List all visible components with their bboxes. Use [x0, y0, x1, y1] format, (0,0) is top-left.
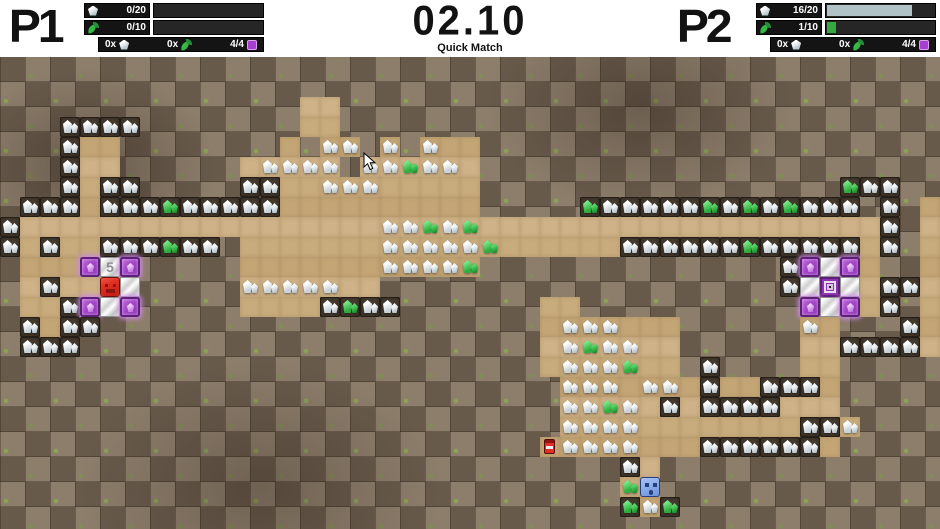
white-gem — [440, 237, 460, 257]
white-gem-in-dirt — [240, 177, 260, 197]
p2-gem-inventory: 0x — [777, 39, 801, 50]
white-gem-icon — [782, 260, 798, 274]
dug-sand-tile — [860, 257, 880, 277]
white-gem-icon — [122, 120, 138, 134]
white-gem-icon — [22, 200, 38, 214]
white-gem-icon — [442, 260, 458, 274]
p2-block-inventory-count: 4/4 — [902, 39, 916, 50]
dug-sand-tile — [760, 217, 780, 237]
white-gem-icon — [882, 300, 898, 314]
dug-sand-tile — [820, 357, 840, 377]
white-gem-icon — [822, 200, 838, 214]
white-gem-icon — [342, 180, 358, 194]
white-gem-icon — [42, 340, 58, 354]
green-gem-in-dirt — [740, 237, 760, 257]
green-gem — [420, 217, 440, 237]
white-gem-icon — [642, 240, 658, 254]
white-gem-icon — [622, 440, 638, 454]
dug-sand-tile — [80, 237, 100, 257]
dug-sand-tile — [420, 197, 440, 217]
white-gem-in-dirt — [740, 437, 760, 457]
marble-block — [800, 277, 820, 297]
white-gem-icon — [862, 180, 878, 194]
white-gem-icon — [762, 240, 778, 254]
dug-sand-tile — [700, 217, 720, 237]
white-gem-icon — [622, 420, 638, 434]
dug-sand-tile — [920, 237, 940, 257]
white-gem-icon — [422, 260, 438, 274]
white-gem-icon — [802, 320, 818, 334]
white-gem-icon — [62, 180, 78, 194]
dug-sand-tile — [140, 217, 160, 237]
dug-sand-tile — [660, 337, 680, 357]
dug-sand-tile — [280, 257, 300, 277]
white-gem-icon — [382, 140, 398, 154]
white-gem-in-dirt — [780, 437, 800, 457]
dug-sand-tile — [100, 217, 120, 237]
gem-icon — [791, 40, 801, 50]
purple-crystal-block — [120, 297, 140, 317]
white-gem — [600, 337, 620, 357]
dug-sand-tile — [920, 317, 940, 337]
white-gem-in-dirt — [880, 177, 900, 197]
dug-sand-tile — [400, 197, 420, 217]
white-gem-icon — [62, 120, 78, 134]
dug-sand-tile — [40, 297, 60, 317]
dug-sand-tile — [520, 237, 540, 257]
white-gem-icon — [422, 140, 438, 154]
white-gem — [560, 417, 580, 437]
white-gem — [240, 277, 260, 297]
dug-sand-tile — [600, 217, 620, 237]
white-gem-icon — [622, 340, 638, 354]
dug-sand-tile — [820, 397, 840, 417]
dug-sand-tile — [680, 217, 700, 237]
white-gem-icon — [562, 340, 578, 354]
white-gem-icon — [42, 240, 58, 254]
white-gem-icon — [702, 440, 718, 454]
white-gem — [840, 417, 860, 437]
marble-block — [820, 297, 840, 317]
dug-sand-tile — [240, 157, 260, 177]
white-gem-icon — [822, 420, 838, 434]
dug-sand-tile — [80, 137, 100, 157]
dug-sand-tile — [660, 437, 680, 457]
white-gem-icon — [822, 240, 838, 254]
white-gem-icon — [782, 440, 798, 454]
dug-sand-tile — [520, 217, 540, 237]
white-gem-icon — [562, 320, 578, 334]
white-gem-in-dirt — [720, 237, 740, 257]
game-board[interactable]: 5 — [0, 57, 940, 529]
p2-leaf-inventory: 0x — [839, 39, 864, 50]
white-gem-icon — [362, 300, 378, 314]
numbered-marble-block: 5 — [100, 257, 120, 277]
white-gem-icon — [42, 200, 58, 214]
white-gem — [560, 337, 580, 357]
white-gem-in-dirt — [100, 177, 120, 197]
green-gem — [620, 357, 640, 377]
white-gem-icon — [842, 420, 858, 434]
dug-sand-tile — [440, 177, 460, 197]
dug-sand-tile — [460, 137, 480, 157]
dug-sand-tile — [640, 437, 660, 457]
dug-sand-tile — [80, 177, 100, 197]
dug-sand-tile — [560, 237, 580, 257]
white-gem — [420, 137, 440, 157]
p2-leaf-counter: 1/10 — [756, 20, 822, 35]
white-gem-in-dirt — [660, 397, 680, 417]
white-gem-icon — [2, 240, 18, 254]
white-gem-icon — [422, 240, 438, 254]
dug-sand-tile — [920, 217, 940, 237]
dug-sand-tile — [860, 217, 880, 237]
dug-sand-tile — [460, 177, 480, 197]
dug-sand-tile — [280, 217, 300, 237]
green-gem-in-dirt — [580, 197, 600, 217]
dug-sand-tile — [560, 297, 580, 317]
white-gem-icon — [882, 180, 898, 194]
dug-sand-tile — [860, 297, 880, 317]
white-gem-in-dirt — [20, 337, 40, 357]
dug-sand-tile — [540, 317, 560, 337]
dug-sand-tile — [360, 277, 380, 297]
dug-sand-tile — [300, 117, 320, 137]
green-gem — [580, 337, 600, 357]
white-gem-icon — [602, 360, 618, 374]
white-gem-in-dirt — [360, 297, 380, 317]
dug-sand-tile — [580, 237, 600, 257]
white-gem-icon — [562, 360, 578, 374]
white-gem-icon — [562, 400, 578, 414]
white-gem — [400, 217, 420, 237]
white-gem-icon — [802, 200, 818, 214]
white-gem-in-dirt — [140, 237, 160, 257]
dug-sand-tile — [20, 297, 40, 317]
white-gem — [320, 277, 340, 297]
white-gem-icon — [402, 260, 418, 274]
player-red-avatar — [100, 277, 120, 297]
dug-sand-tile — [220, 217, 240, 237]
dug-sand-tile — [920, 297, 940, 317]
green-gem-icon — [702, 200, 718, 214]
white-gem-icon — [862, 340, 878, 354]
white-gem-in-dirt — [660, 197, 680, 217]
white-gem-icon — [802, 380, 818, 394]
white-gem-in-dirt — [700, 237, 720, 257]
white-gem-in-dirt — [180, 237, 200, 257]
dug-sand-tile — [840, 217, 860, 237]
marble-block — [100, 297, 120, 317]
white-gem-icon — [882, 200, 898, 214]
purple-crystal-block — [840, 297, 860, 317]
white-gem-in-dirt — [700, 437, 720, 457]
dug-sand-tile — [540, 357, 560, 377]
dug-sand-tile — [360, 237, 380, 257]
white-gem — [280, 277, 300, 297]
white-gem-in-dirt — [880, 337, 900, 357]
white-gem-in-dirt — [700, 357, 720, 377]
white-gem — [380, 137, 400, 157]
dug-sand-tile — [440, 137, 460, 157]
dug-sand-tile — [660, 317, 680, 337]
white-gem — [580, 417, 600, 437]
white-gem-in-dirt — [120, 177, 140, 197]
white-gem-in-dirt — [620, 237, 640, 257]
white-gem-in-dirt — [700, 397, 720, 417]
white-gem-icon — [662, 200, 678, 214]
white-gem — [280, 157, 300, 177]
white-gem-icon — [102, 200, 118, 214]
white-gem-in-dirt — [20, 317, 40, 337]
base-center-marker — [820, 277, 840, 297]
white-gem-icon — [682, 200, 698, 214]
dug-sand-tile — [640, 317, 660, 337]
dug-sand-tile — [80, 197, 100, 217]
white-gem — [360, 177, 380, 197]
dug-sand-tile — [320, 217, 340, 237]
green-gem-icon — [582, 200, 598, 214]
dug-sand-tile — [100, 137, 120, 157]
dug-sand-tile — [300, 237, 320, 257]
dug-sand-tile — [260, 237, 280, 257]
white-gem-icon — [802, 440, 818, 454]
white-gem-icon — [62, 140, 78, 154]
white-gem — [340, 137, 360, 157]
white-gem-icon — [382, 260, 398, 274]
dug-sand-tile — [720, 217, 740, 237]
dug-sand-tile — [620, 377, 640, 397]
green-gem-icon — [342, 300, 358, 314]
white-gem-in-dirt — [800, 437, 820, 457]
white-gem-in-dirt — [760, 397, 780, 417]
white-gem-in-dirt — [120, 197, 140, 217]
white-gem — [620, 417, 640, 437]
white-gem-icon — [382, 240, 398, 254]
green-gem-in-dirt — [340, 297, 360, 317]
white-gem — [460, 237, 480, 257]
white-gem-in-dirt — [240, 197, 260, 217]
white-gem-icon — [262, 180, 278, 194]
leaf-icon — [853, 39, 864, 50]
green-gem-in-dirt — [840, 177, 860, 197]
dug-sand-tile — [820, 217, 840, 237]
white-gem-icon — [102, 120, 118, 134]
dug-sand-tile — [60, 217, 80, 237]
white-gem — [260, 157, 280, 177]
p2-leaf-progress-fill — [827, 22, 836, 33]
p2-gem-progress-row: 16/20 — [756, 3, 936, 18]
white-gem-in-dirt — [60, 197, 80, 217]
dug-sand-tile — [180, 217, 200, 237]
white-gem-icon — [762, 200, 778, 214]
white-gem — [600, 357, 620, 377]
white-gem-in-dirt — [120, 117, 140, 137]
dug-sand-tile — [300, 197, 320, 217]
dug-sand-tile — [60, 237, 80, 257]
white-gem — [620, 397, 640, 417]
block-icon — [919, 40, 929, 50]
dug-sand-tile — [860, 237, 880, 257]
white-gem-icon — [322, 160, 338, 174]
white-gem-icon — [582, 420, 598, 434]
white-gem-icon — [742, 440, 758, 454]
white-gem — [560, 437, 580, 457]
green-gem — [480, 237, 500, 257]
white-gem — [580, 377, 600, 397]
white-gem-icon — [402, 220, 418, 234]
white-gem-in-dirt — [40, 277, 60, 297]
white-gem-in-dirt — [820, 417, 840, 437]
dug-sand-tile — [500, 237, 520, 257]
tnt-icon — [544, 439, 555, 454]
white-gem-in-dirt — [900, 317, 920, 337]
dug-sand-tile — [460, 157, 480, 177]
white-gem — [420, 237, 440, 257]
white-gem-icon — [442, 160, 458, 174]
dug-sand-tile — [700, 417, 720, 437]
white-gem-in-dirt — [760, 237, 780, 257]
white-gem-icon — [282, 160, 298, 174]
p2-gem-counter: 16/20 — [756, 3, 822, 18]
white-gem — [400, 237, 420, 257]
dug-sand-tile — [60, 257, 80, 277]
white-gem-icon — [662, 240, 678, 254]
white-gem-icon — [762, 440, 778, 454]
dug-sand-tile — [280, 197, 300, 217]
dug-sand-tile — [340, 237, 360, 257]
white-gem-icon — [602, 200, 618, 214]
white-gem-icon — [382, 160, 398, 174]
white-gem-in-dirt — [260, 177, 280, 197]
white-gem — [580, 397, 600, 417]
white-gem-icon — [622, 200, 638, 214]
green-gem-icon — [782, 200, 798, 214]
white-gem-icon — [202, 200, 218, 214]
white-gem-icon — [582, 360, 598, 374]
dug-sand-tile — [200, 217, 220, 237]
dug-sand-tile — [320, 257, 340, 277]
white-gem-icon — [602, 380, 618, 394]
dug-sand-tile — [540, 217, 560, 237]
dug-sand-tile — [540, 237, 560, 257]
gem-icon — [760, 6, 770, 16]
white-gem-in-dirt — [900, 337, 920, 357]
white-gem-icon — [882, 220, 898, 234]
dug-sand-tile — [640, 397, 660, 417]
green-gem-icon — [162, 200, 178, 214]
dug-sand-tile — [360, 197, 380, 217]
dug-sand-tile — [720, 417, 740, 437]
white-gem-icon — [102, 240, 118, 254]
white-gem-in-dirt — [800, 237, 820, 257]
green-gem-icon — [662, 500, 678, 514]
white-gem-in-dirt — [40, 197, 60, 217]
tnt-canister — [540, 437, 560, 457]
dug-sand-tile — [80, 157, 100, 177]
p2-gem-progress-fill — [827, 5, 912, 16]
white-gem — [800, 317, 820, 337]
white-gem-in-dirt — [60, 317, 80, 337]
white-gem-icon — [782, 380, 798, 394]
dug-sand-tile — [640, 217, 660, 237]
white-gem — [620, 337, 640, 357]
white-gem-in-dirt — [660, 237, 680, 257]
white-gem-icon — [722, 400, 738, 414]
white-gem-icon — [202, 240, 218, 254]
white-gem-icon — [702, 240, 718, 254]
white-gem-in-dirt — [680, 237, 700, 257]
white-gem-in-dirt — [620, 457, 640, 477]
dug-sand-tile — [920, 337, 940, 357]
dug-sand-tile — [860, 277, 880, 297]
white-gem-icon — [722, 440, 738, 454]
dug-sand-tile — [380, 177, 400, 197]
dug-sand-tile — [340, 197, 360, 217]
p2-gem-inventory-count: 0x — [777, 39, 788, 50]
white-gem-icon — [102, 180, 118, 194]
dug-sand-tile — [40, 257, 60, 277]
white-gem-icon — [682, 240, 698, 254]
white-gem-icon — [182, 200, 198, 214]
white-gem-in-dirt — [720, 397, 740, 417]
dug-sand-tile — [680, 397, 700, 417]
white-gem — [600, 417, 620, 437]
white-gem-icon — [562, 380, 578, 394]
dug-sand-tile — [340, 217, 360, 237]
white-gem-icon — [702, 360, 718, 374]
white-gem-icon — [902, 340, 918, 354]
white-gem-icon — [762, 400, 778, 414]
dug-sand-tile — [580, 217, 600, 237]
white-gem — [380, 237, 400, 257]
dug-sand-tile — [300, 257, 320, 277]
dug-sand-tile — [760, 417, 780, 437]
dug-sand-tile — [280, 237, 300, 257]
white-gem-in-dirt — [760, 197, 780, 217]
dug-sand-tile — [20, 277, 40, 297]
white-gem-in-dirt — [820, 237, 840, 257]
dug-sand-tile — [360, 257, 380, 277]
white-gem-icon — [662, 380, 678, 394]
white-gem — [300, 157, 320, 177]
white-gem-icon — [782, 280, 798, 294]
dug-sand-tile — [620, 217, 640, 237]
green-gem — [460, 217, 480, 237]
dug-sand-tile — [300, 217, 320, 237]
white-gem-in-dirt — [860, 177, 880, 197]
dug-sand-tile — [780, 397, 800, 417]
white-gem-icon — [262, 200, 278, 214]
white-gem-in-dirt — [100, 237, 120, 257]
green-gem — [620, 477, 640, 497]
white-gem-icon — [642, 200, 658, 214]
green-gem-icon — [422, 220, 438, 234]
dug-sand-tile — [20, 257, 40, 277]
dug-sand-tile — [300, 177, 320, 197]
white-gem-icon — [462, 240, 478, 254]
white-gem-in-dirt — [60, 297, 80, 317]
white-gem-icon — [2, 220, 18, 234]
dug-sand-tile — [80, 277, 100, 297]
green-gem — [460, 257, 480, 277]
dug-sand-tile — [640, 357, 660, 377]
white-gem-icon — [242, 200, 258, 214]
white-gem-icon — [142, 200, 158, 214]
purple-crystal-block — [120, 257, 140, 277]
white-gem — [580, 437, 600, 457]
dug-sand-tile — [680, 417, 700, 437]
